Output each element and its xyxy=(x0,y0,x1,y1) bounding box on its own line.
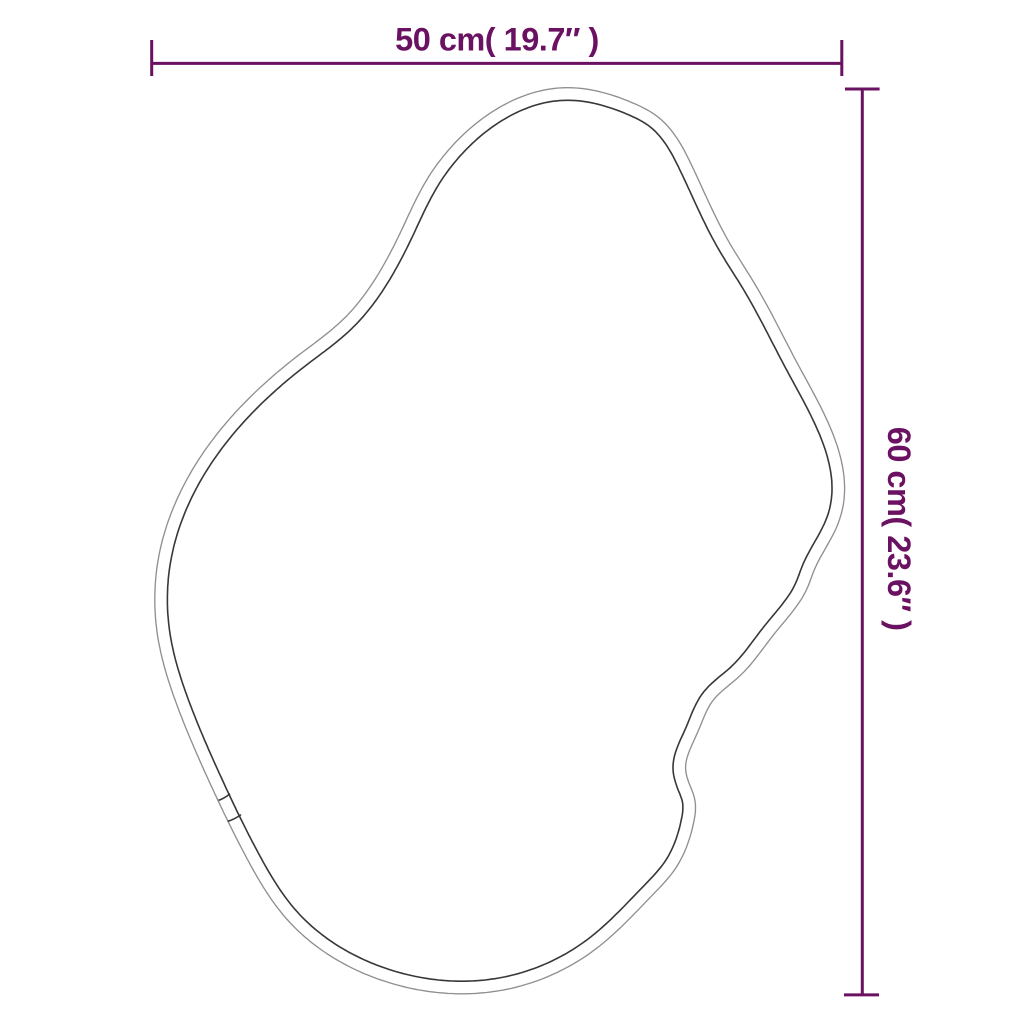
svg-text:50 cm( 19.7″ ): 50 cm( 19.7″ ) xyxy=(395,21,599,57)
svg-text:60 cm( 23.6″ ): 60 cm( 23.6″ ) xyxy=(881,427,917,631)
